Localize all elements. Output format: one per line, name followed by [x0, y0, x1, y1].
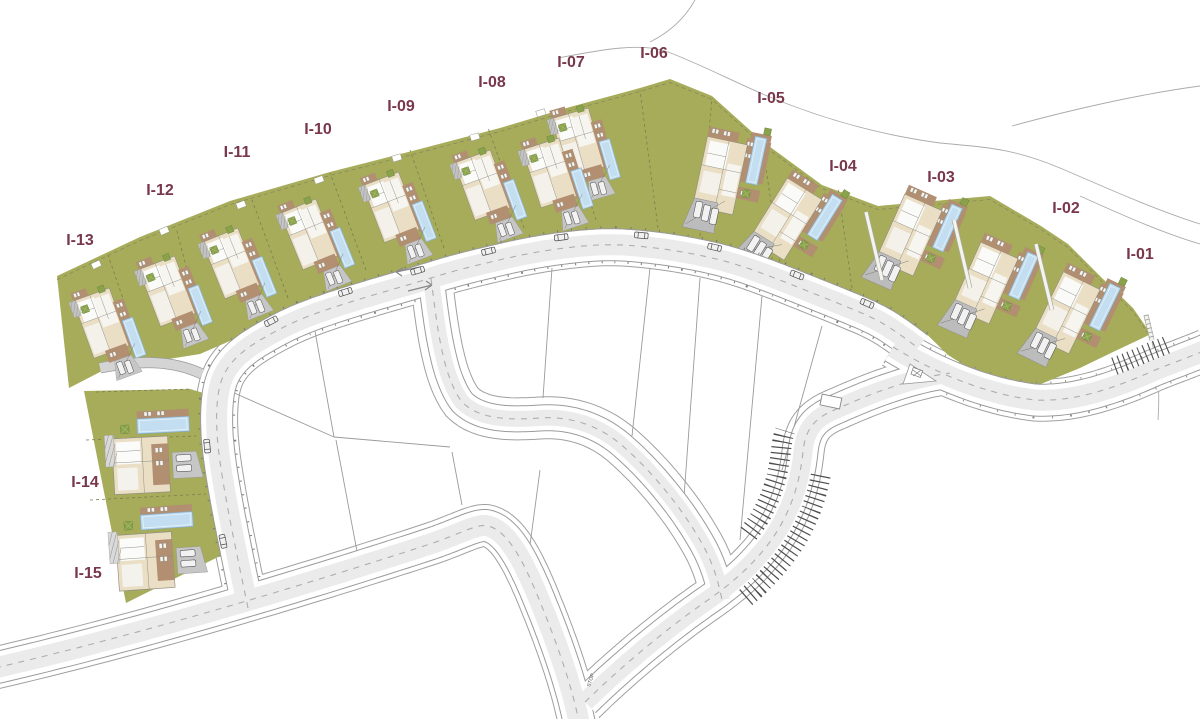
svg-text:I-01: I-01 [1126, 246, 1154, 263]
svg-text:I-04: I-04 [829, 158, 857, 175]
svg-text:I-06: I-06 [640, 45, 668, 62]
svg-text:I-07: I-07 [557, 54, 585, 71]
svg-text:I-02: I-02 [1052, 200, 1080, 217]
svg-text:I-10: I-10 [304, 121, 332, 138]
svg-text:I-05: I-05 [757, 90, 785, 107]
svg-text:I-11: I-11 [224, 144, 251, 161]
svg-text:I-12: I-12 [146, 182, 174, 199]
svg-text:I-15: I-15 [74, 565, 102, 582]
svg-text:I-08: I-08 [478, 74, 506, 91]
svg-text:I-03: I-03 [927, 169, 955, 186]
svg-text:I-09: I-09 [387, 98, 415, 115]
svg-text:I-14: I-14 [71, 474, 99, 491]
svg-text:I-13: I-13 [66, 232, 94, 249]
